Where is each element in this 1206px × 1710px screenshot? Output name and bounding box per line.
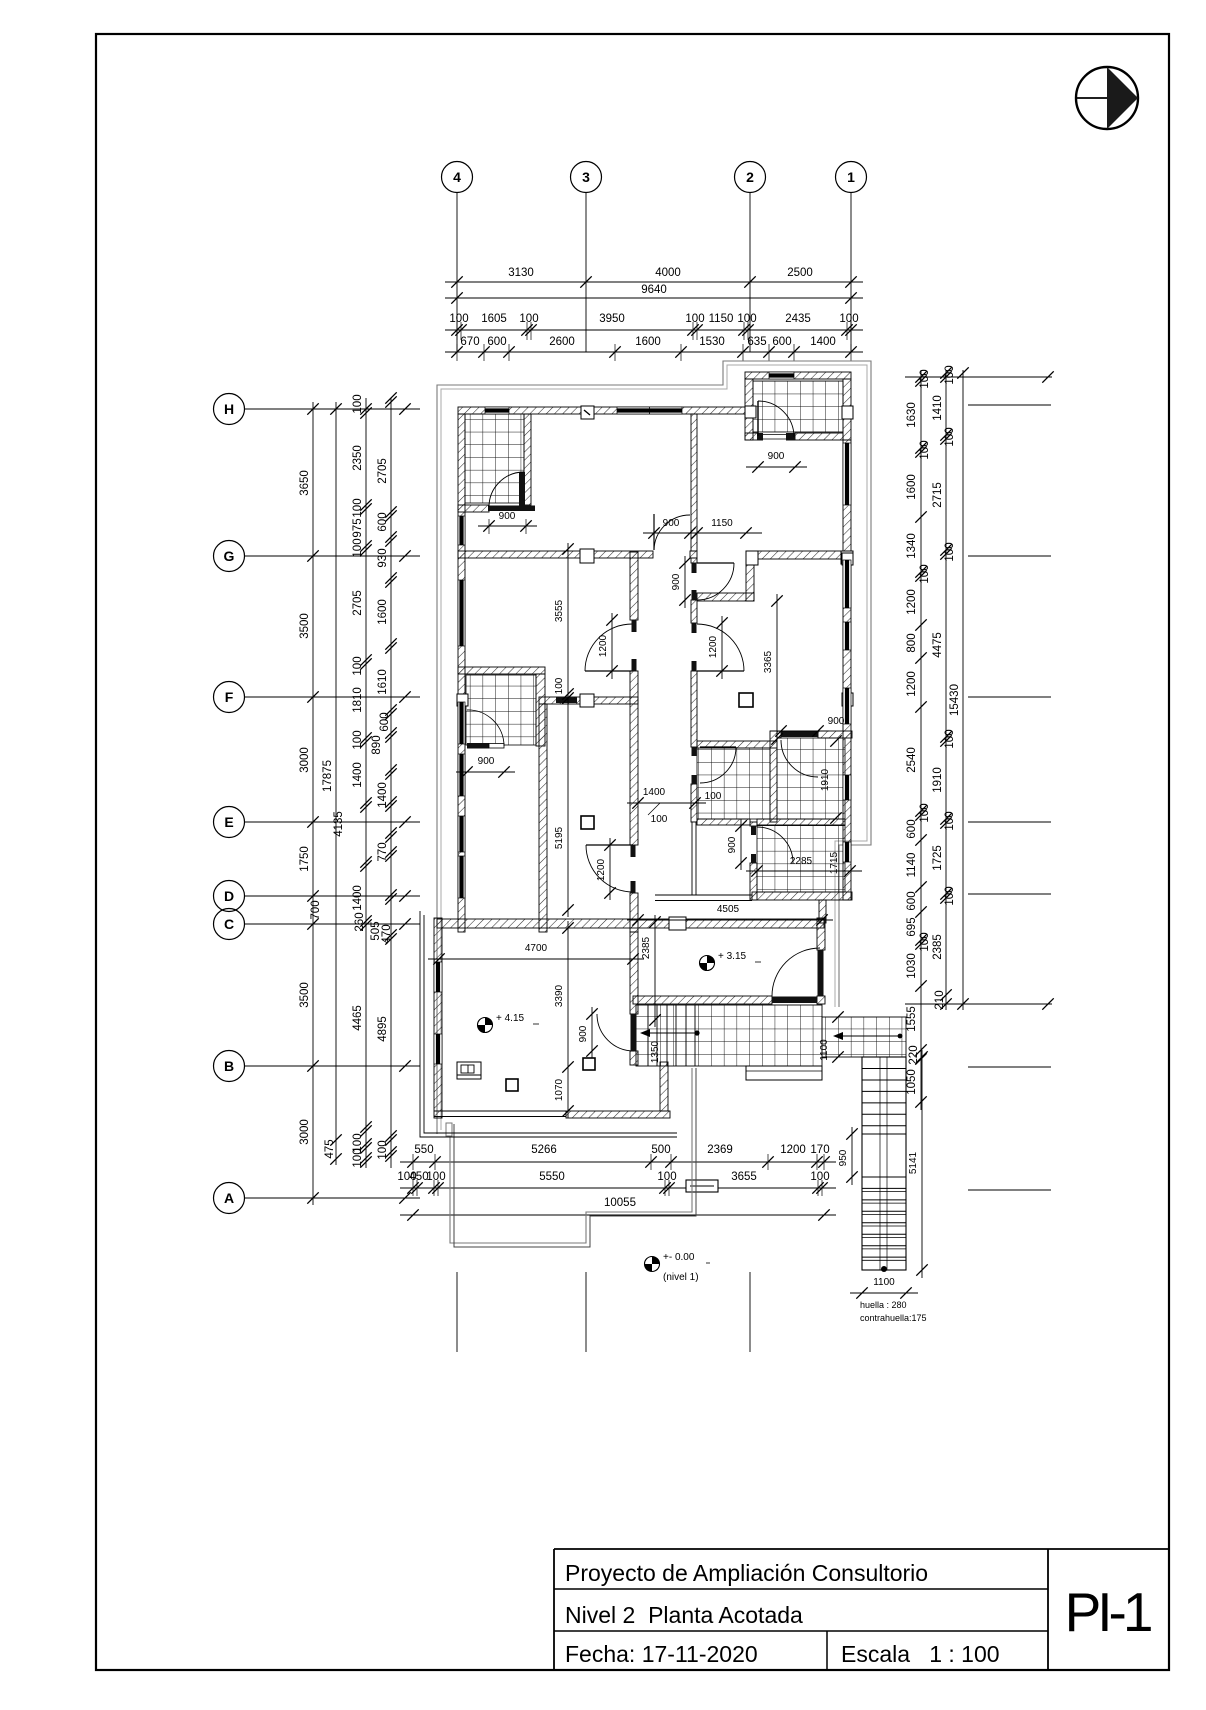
svg-text:Escala 1 : 100: Escala 1 : 100: [841, 1641, 1000, 1667]
svg-text:1100: 1100: [873, 1277, 895, 1288]
svg-text:9640: 9640: [641, 284, 667, 296]
svg-text:4895: 4895: [377, 1016, 389, 1042]
svg-text:1200: 1200: [598, 634, 609, 657]
svg-text:100: 100: [705, 791, 722, 802]
svg-text:1725: 1725: [932, 845, 944, 871]
svg-text:1630: 1630: [906, 402, 918, 428]
svg-text:100: 100: [377, 1140, 389, 1159]
svg-text:2435: 2435: [785, 313, 811, 325]
svg-text:2369: 2369: [707, 1144, 733, 1156]
svg-text:1555: 1555: [906, 1006, 918, 1032]
svg-text:1200: 1200: [780, 1144, 806, 1156]
svg-text:1605: 1605: [481, 313, 507, 325]
svg-text:3130: 3130: [508, 267, 534, 279]
svg-text:3365: 3365: [763, 650, 774, 673]
svg-text:500: 500: [651, 1144, 670, 1156]
svg-text:1200: 1200: [906, 589, 918, 615]
svg-text:1400: 1400: [352, 762, 364, 788]
svg-text:contrahuella:175: contrahuella:175: [860, 1313, 927, 1323]
svg-text:4: 4: [453, 169, 461, 185]
svg-text:4465: 4465: [352, 1005, 364, 1031]
svg-text:5550: 5550: [539, 1171, 565, 1183]
svg-text:+ 3.15: + 3.15: [718, 951, 747, 962]
svg-text:4475: 4475: [932, 632, 944, 658]
svg-text:2385: 2385: [932, 934, 944, 960]
svg-text:1600: 1600: [906, 474, 918, 500]
svg-text:2285: 2285: [790, 856, 813, 867]
svg-text:4000: 4000: [655, 267, 681, 279]
svg-text:600: 600: [487, 336, 506, 348]
svg-text:260: 260: [354, 912, 366, 931]
svg-text:1340: 1340: [906, 533, 918, 559]
svg-text:2: 2: [746, 169, 754, 185]
svg-text:100: 100: [352, 656, 364, 675]
svg-text:900: 900: [499, 511, 516, 522]
svg-text:2500: 2500: [787, 267, 813, 279]
svg-text:H: H: [224, 401, 234, 417]
svg-text:3950: 3950: [599, 313, 625, 325]
svg-text:1910: 1910: [820, 768, 831, 791]
svg-text:A: A: [224, 1190, 234, 1206]
svg-text:3655: 3655: [731, 1171, 757, 1183]
svg-text:600: 600: [906, 891, 918, 910]
svg-text:100: 100: [919, 564, 931, 583]
svg-text:890: 890: [371, 735, 383, 754]
svg-text:3500: 3500: [299, 982, 311, 1008]
svg-text:2705: 2705: [377, 458, 389, 484]
svg-text:100: 100: [554, 677, 565, 694]
svg-text:3000: 3000: [299, 1119, 311, 1145]
svg-text:3000: 3000: [299, 747, 311, 773]
svg-text:950: 950: [838, 1149, 849, 1166]
svg-text:1715: 1715: [829, 851, 840, 874]
svg-text:1400: 1400: [377, 782, 389, 808]
svg-text:600: 600: [377, 512, 389, 531]
svg-text:3: 3: [582, 169, 590, 185]
svg-text:900: 900: [578, 1025, 589, 1042]
svg-text:930: 930: [377, 548, 389, 567]
svg-text:470: 470: [381, 924, 393, 943]
svg-text:(nivel 1): (nivel 1): [663, 1272, 699, 1283]
svg-text:2705: 2705: [352, 590, 364, 616]
svg-text:975: 975: [352, 518, 364, 537]
svg-text:695: 695: [906, 917, 918, 936]
svg-text:+- 0.00: +- 0.00: [663, 1252, 695, 1263]
svg-text:100: 100: [944, 427, 956, 446]
svg-text:4700: 4700: [525, 943, 548, 954]
svg-text:100: 100: [944, 729, 956, 748]
svg-text:1: 1: [847, 169, 855, 185]
svg-text:C: C: [224, 916, 234, 932]
svg-text:170: 170: [810, 1144, 829, 1156]
svg-text:900: 900: [478, 756, 495, 767]
svg-text:900: 900: [727, 836, 738, 853]
svg-text:670: 670: [460, 336, 479, 348]
svg-text:3390: 3390: [554, 984, 565, 1007]
svg-text:700: 700: [310, 900, 322, 919]
svg-text:100: 100: [839, 313, 858, 325]
svg-text:100: 100: [919, 440, 931, 459]
svg-text:100: 100: [352, 394, 364, 413]
svg-text:1350: 1350: [650, 1040, 661, 1063]
svg-text:5195: 5195: [554, 826, 565, 849]
svg-text:5266: 5266: [531, 1144, 557, 1156]
svg-text:G: G: [224, 548, 235, 564]
svg-text:100: 100: [352, 730, 364, 749]
svg-text:900: 900: [663, 518, 680, 529]
svg-text:100: 100: [519, 313, 538, 325]
svg-text:800: 800: [906, 633, 918, 652]
svg-text:1600: 1600: [635, 336, 661, 348]
svg-text:900: 900: [768, 451, 785, 462]
svg-text:550: 550: [414, 1144, 433, 1156]
svg-text:100: 100: [919, 803, 931, 822]
svg-text:1530: 1530: [699, 336, 725, 348]
svg-text:1200: 1200: [906, 671, 918, 697]
svg-text:+ 4.15: + 4.15: [496, 1013, 525, 1024]
svg-text:600: 600: [379, 712, 391, 731]
svg-text:3500: 3500: [299, 613, 311, 639]
svg-text:2350: 2350: [352, 445, 364, 471]
svg-text:4505: 4505: [717, 904, 740, 915]
svg-text:1150: 1150: [709, 313, 734, 325]
svg-text:100: 100: [810, 1171, 829, 1183]
svg-text:1610: 1610: [377, 669, 389, 695]
svg-text:1810: 1810: [352, 687, 364, 713]
svg-text:2600: 2600: [549, 336, 575, 348]
svg-text:1140: 1140: [906, 853, 918, 878]
svg-text:1070: 1070: [554, 1078, 565, 1101]
svg-text:900: 900: [671, 573, 682, 590]
svg-text:1750: 1750: [299, 846, 311, 872]
svg-text:100: 100: [426, 1171, 445, 1183]
svg-text:1150: 1150: [711, 518, 733, 529]
svg-text:770: 770: [377, 842, 389, 861]
svg-text:1050: 1050: [906, 1069, 918, 1095]
svg-text:1600: 1600: [377, 599, 389, 625]
svg-text:E: E: [224, 814, 233, 830]
svg-text:F: F: [225, 689, 234, 705]
svg-text:100: 100: [685, 313, 704, 325]
svg-text:100: 100: [737, 313, 756, 325]
svg-text:100: 100: [944, 365, 956, 384]
svg-text:100: 100: [919, 932, 931, 951]
svg-text:1910: 1910: [932, 767, 944, 793]
svg-text:1410: 1410: [932, 395, 944, 421]
svg-text:600: 600: [772, 336, 791, 348]
svg-text:Fecha: 17-11-2020: Fecha: 17-11-2020: [565, 1641, 758, 1667]
svg-text:PI-1: PI-1: [1065, 1581, 1151, 1643]
svg-text:100: 100: [651, 814, 668, 825]
svg-text:100: 100: [657, 1171, 676, 1183]
svg-text:4135: 4135: [333, 811, 345, 837]
svg-text:600: 600: [906, 819, 918, 838]
svg-text:1400: 1400: [643, 787, 666, 798]
svg-text:3555: 3555: [554, 599, 565, 622]
svg-text:475: 475: [324, 1139, 336, 1158]
svg-text:635: 635: [747, 336, 766, 348]
svg-text:100: 100: [944, 886, 956, 905]
svg-text:100: 100: [944, 811, 956, 830]
svg-text:5141: 5141: [908, 1151, 919, 1174]
svg-text:3650: 3650: [299, 470, 311, 496]
svg-text:100: 100: [449, 313, 468, 325]
svg-text:huella : 280: huella : 280: [860, 1300, 907, 1310]
svg-text:10055: 10055: [604, 1197, 636, 1209]
svg-text:Nivel 2 Planta Acotada: Nivel 2 Planta Acotada: [565, 1602, 803, 1628]
svg-text:100: 100: [352, 538, 364, 557]
svg-text:100: 100: [919, 369, 931, 388]
svg-text:100: 100: [352, 1148, 364, 1167]
svg-text:1200: 1200: [596, 858, 607, 881]
svg-text:D: D: [224, 888, 234, 904]
svg-text:17875: 17875: [322, 760, 334, 792]
svg-text:2385: 2385: [641, 936, 652, 959]
svg-text:Proyecto de Ampliación Consult: Proyecto de Ampliación Consultorio: [565, 1560, 928, 1586]
svg-text:2715: 2715: [932, 482, 944, 508]
svg-text:1030: 1030: [906, 953, 918, 979]
svg-text:1100: 1100: [819, 1039, 830, 1061]
svg-text:B: B: [224, 1058, 234, 1074]
svg-text:210: 210: [934, 990, 946, 1009]
svg-text:1400: 1400: [810, 336, 836, 348]
svg-text:100: 100: [944, 542, 956, 561]
svg-text:15430: 15430: [949, 684, 961, 716]
svg-text:2540: 2540: [906, 747, 918, 773]
svg-text:1400: 1400: [352, 885, 364, 911]
svg-text:900: 900: [828, 716, 845, 727]
svg-text:100: 100: [352, 498, 364, 517]
svg-text:1200: 1200: [708, 635, 719, 658]
